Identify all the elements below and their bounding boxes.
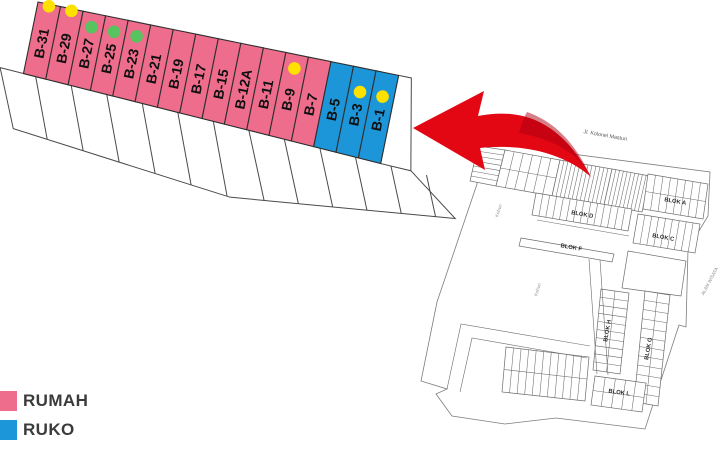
ruko-color-swatch — [0, 420, 17, 440]
area-label-right: ALAM WISATA — [700, 266, 719, 296]
siteplan-canvas: B-31B-29B-27B-25B-23B-21B-19B-17B-15B-12… — [0, 0, 720, 450]
map-block-blok-c — [633, 214, 700, 253]
block-b-diagram: B-31B-29B-27B-25B-23B-21B-19B-17B-15B-12… — [0, 0, 482, 242]
map-block-bottom-left — [502, 347, 589, 401]
street-label: Jl. Kolonel Masturi — [583, 129, 627, 143]
map-block-row-b-left — [496, 150, 560, 196]
ruko-label: RUKO — [23, 420, 75, 440]
legend-row-rumah: RUMAH — [0, 391, 88, 411]
site-map: Jl. Kolonel Masturi BLOK D BLOK F BLOK A… — [421, 129, 720, 429]
rumah-color-swatch — [0, 391, 17, 411]
field-label-1: Kebun — [494, 203, 503, 218]
map-block-blok-a — [643, 174, 708, 219]
rumah-label: RUMAH — [23, 391, 88, 411]
map-block-facility — [622, 251, 686, 296]
map-block-blok-h — [593, 289, 629, 374]
legend-row-ruko: RUKO — [0, 420, 88, 440]
map-lot-blocks — [470, 146, 708, 412]
legend: RUMAH RUKO — [0, 391, 88, 449]
field-label-2: Kebun — [533, 282, 542, 297]
